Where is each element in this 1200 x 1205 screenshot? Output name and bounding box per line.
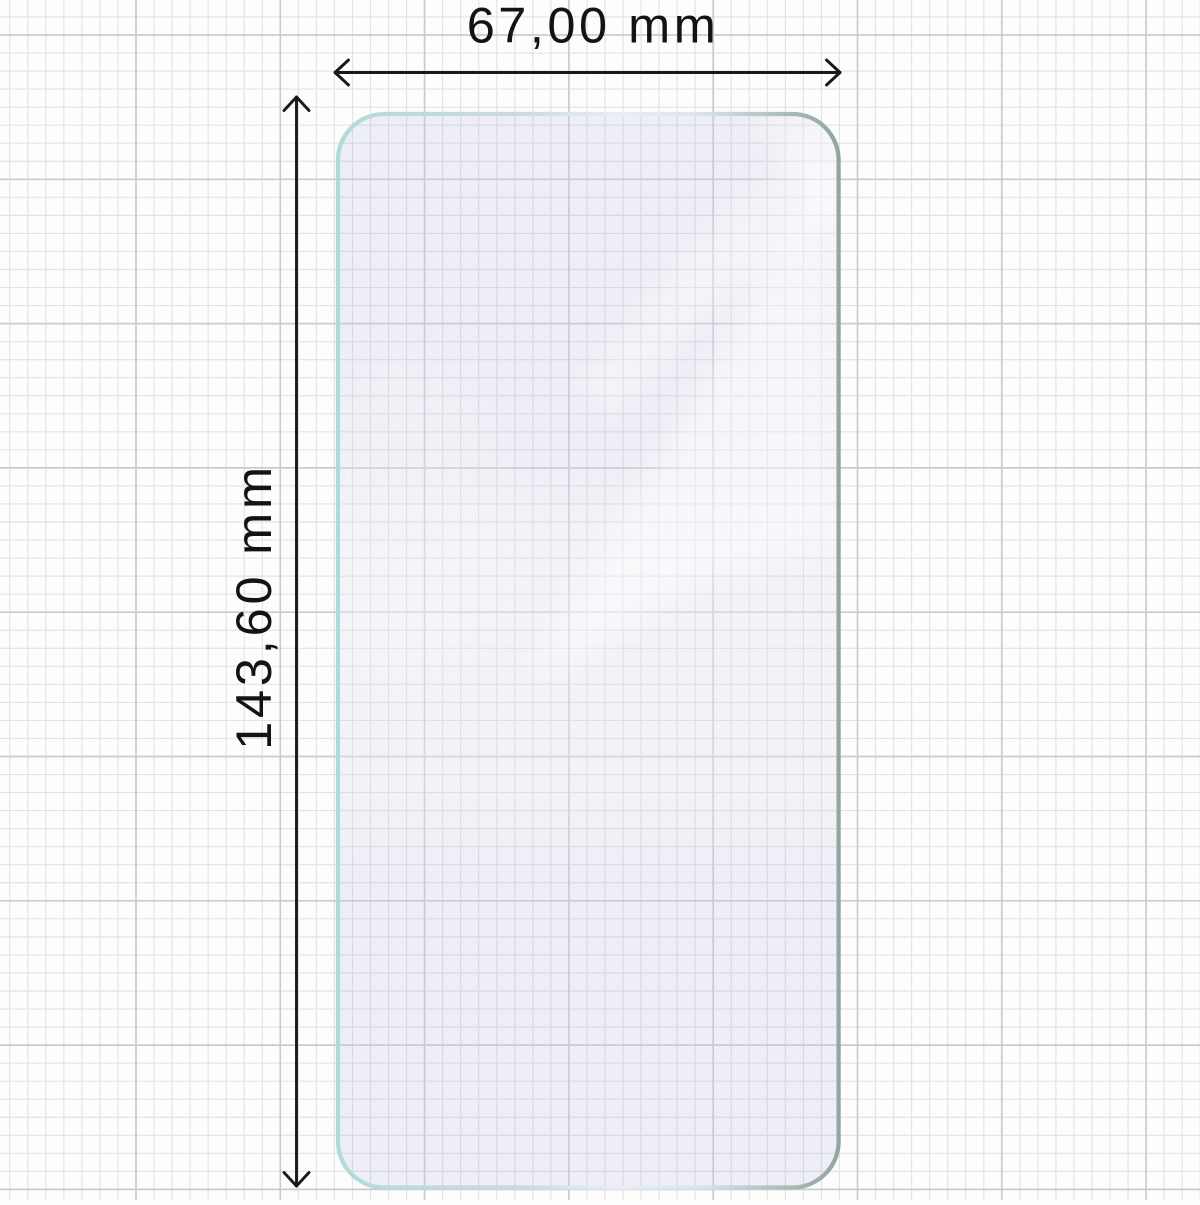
svg-text:143,60 mm: 143,60 mm <box>225 463 282 750</box>
svg-text:67,00 mm: 67,00 mm <box>467 0 720 54</box>
